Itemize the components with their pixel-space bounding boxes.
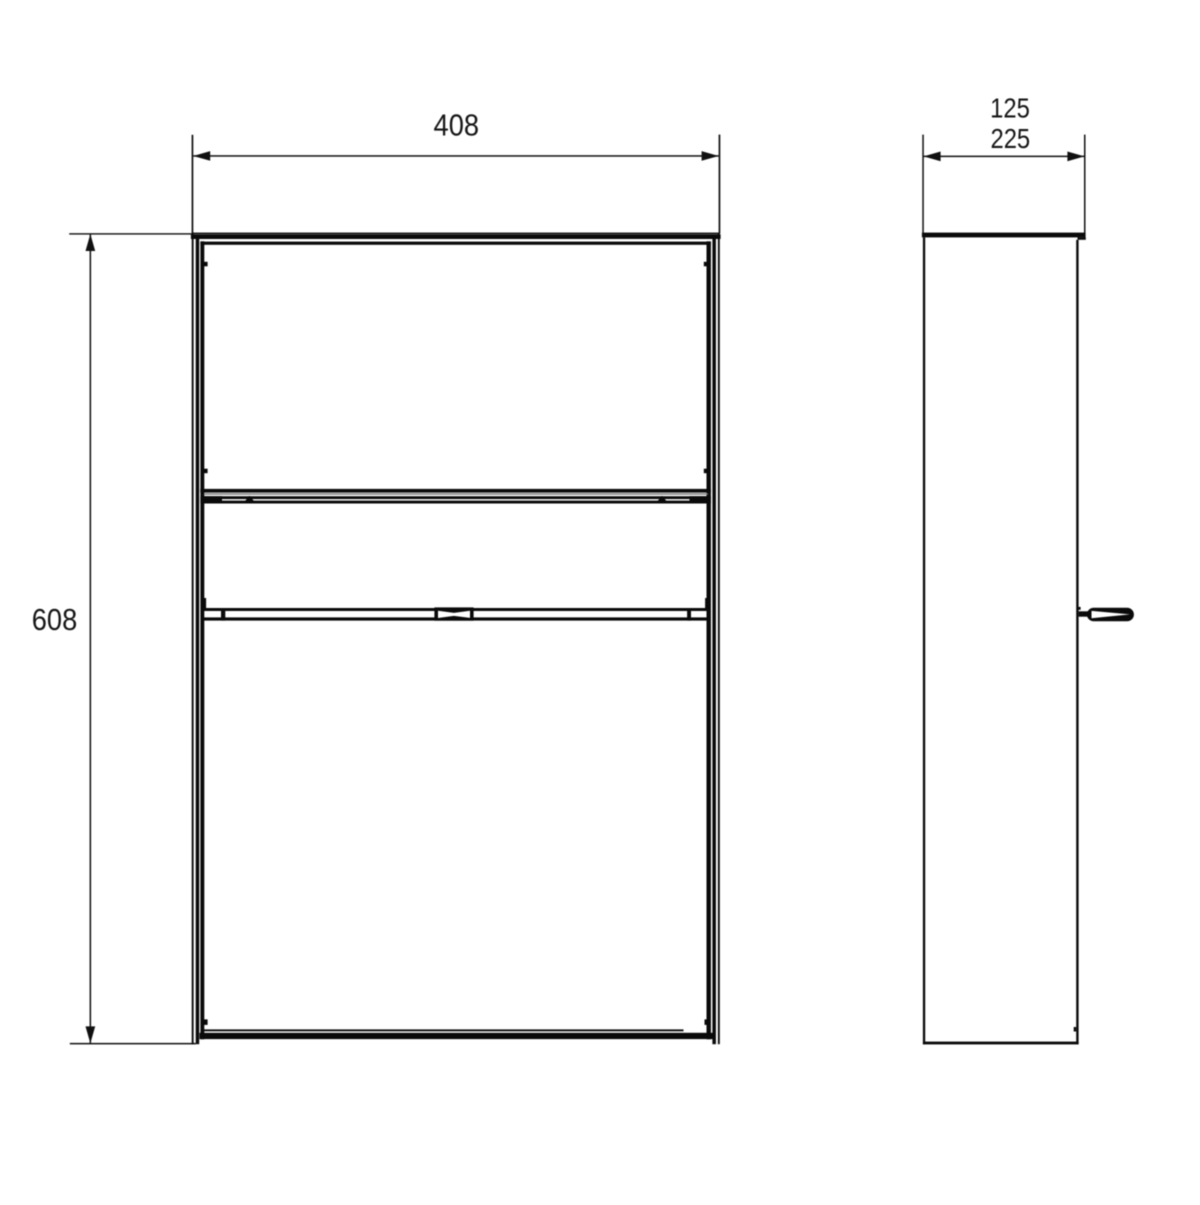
- svg-text:225: 225: [990, 122, 1030, 154]
- svg-text:125: 125: [990, 92, 1030, 124]
- svg-text:608: 608: [32, 603, 78, 637]
- svg-text:408: 408: [434, 109, 480, 143]
